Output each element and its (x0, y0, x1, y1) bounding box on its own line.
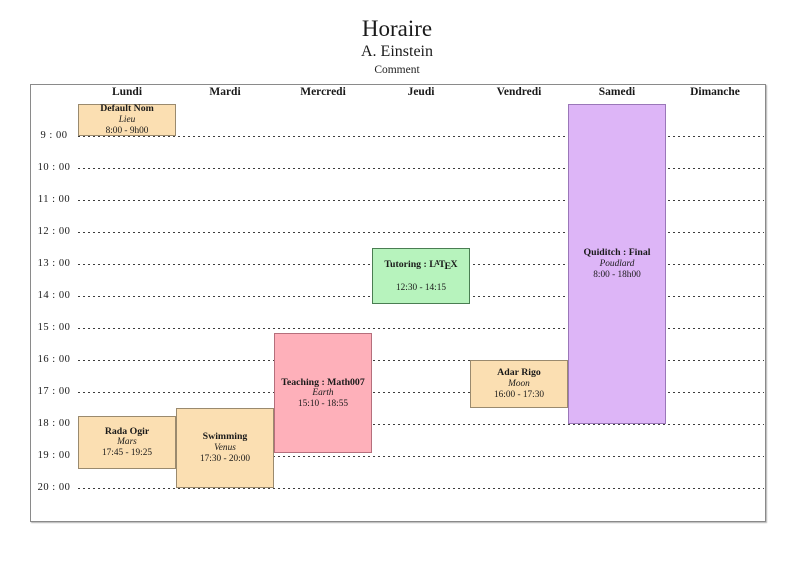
event-title: Teaching : Math007 (281, 377, 364, 389)
event-time: 8:00 - 18h00 (593, 270, 641, 281)
time-label: 17 : 00 (34, 385, 74, 398)
event-title: Quiditch : Final (584, 247, 651, 259)
event-time: 12:30 - 14:15 (396, 283, 446, 294)
event-location: Venus (214, 443, 236, 454)
time-label: 10 : 00 (34, 161, 74, 174)
hour-gridline (78, 488, 764, 489)
event-time: 17:45 - 19:25 (102, 448, 152, 459)
day-header: Vendredi (470, 85, 568, 99)
time-label: 19 : 00 (34, 449, 74, 462)
time-label: 14 : 00 (34, 289, 74, 302)
event-block: Tutoring : LATEX12:30 - 14:15 (372, 248, 470, 304)
page-title: Horaire (0, 16, 794, 42)
day-header: Jeudi (372, 85, 470, 99)
day-header: Lundi (78, 85, 176, 99)
time-label: 9 : 00 (34, 129, 74, 142)
day-header: Samedi (568, 85, 666, 99)
event-time: 17:30 - 20:00 (200, 454, 250, 465)
time-label: 20 : 00 (34, 481, 74, 494)
event-title: Default Nom (100, 103, 154, 115)
event-title: Rada Ogir (105, 426, 149, 438)
event-location: Lieu (119, 115, 136, 126)
time-label: 11 : 00 (34, 193, 74, 206)
title-block: Horaire A. Einstein Comment (0, 16, 794, 77)
event-block: Adar RigoMoon16:00 - 17:30 (470, 360, 568, 408)
day-header: Dimanche (666, 85, 764, 99)
event-time: 15:10 - 18:55 (298, 399, 348, 410)
event-location: Poudlard (600, 259, 635, 270)
event-location: Mars (117, 437, 137, 448)
time-label: 12 : 00 (34, 225, 74, 238)
event-block: Rada OgirMars17:45 - 19:25 (78, 416, 176, 469)
time-label: 16 : 00 (34, 353, 74, 366)
event-title: Adar Rigo (497, 367, 541, 379)
event-block: Default NomLieu8:00 - 9h00 (78, 104, 176, 136)
event-location: Earth (312, 388, 333, 399)
event-title: Tutoring : LATEX (384, 258, 457, 273)
timetable-page: Horaire A. Einstein Comment LundiMardiMe… (0, 0, 794, 561)
event-time: 16:00 - 17:30 (494, 390, 544, 401)
page-subtitle: A. Einstein (0, 43, 794, 61)
time-label: 18 : 00 (34, 417, 74, 430)
day-header: Mardi (176, 85, 274, 99)
event-time: 8:00 - 9h00 (106, 126, 149, 137)
event-title: Swimming (203, 431, 248, 443)
event-block: Quiditch : FinalPoudlard8:00 - 18h00 (568, 104, 666, 424)
event-block: SwimmingVenus17:30 - 20:00 (176, 408, 274, 488)
time-label: 15 : 00 (34, 321, 74, 334)
time-label: 13 : 00 (34, 257, 74, 270)
day-header: Mercredi (274, 85, 372, 99)
event-location: Moon (508, 379, 530, 390)
event-block: Teaching : Math007Earth15:10 - 18:55 (274, 333, 372, 453)
page-comment: Comment (0, 64, 794, 77)
